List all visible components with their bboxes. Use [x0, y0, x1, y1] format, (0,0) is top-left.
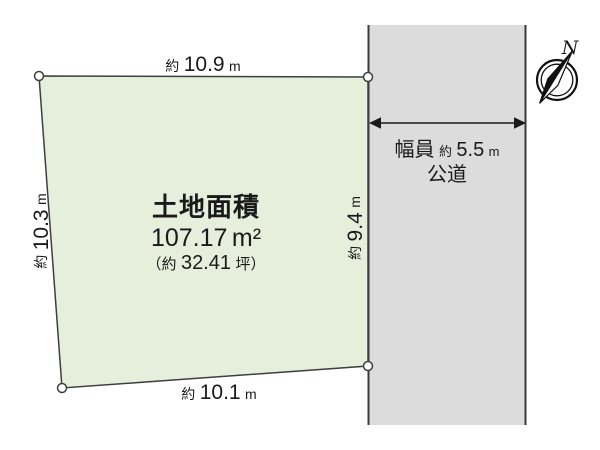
dimension-top-value: 10.9	[184, 53, 225, 76]
dimension-right-prefix: 約	[347, 246, 363, 260]
dimension-left-unit: m	[33, 193, 49, 205]
road-band	[368, 25, 526, 425]
corner-marker-top-right	[364, 73, 373, 82]
corner-marker-bottom-left	[58, 384, 67, 393]
parcel-area: 107.17 m²	[151, 224, 261, 252]
land-plot-diagram: 約 10.9 m 約 10.1 m 約 10.3 m 約 9.4 m 土地面積 …	[0, 0, 600, 450]
dimension-bottom-prefix: 約	[181, 386, 195, 402]
corner-marker-top-left	[35, 72, 44, 81]
road-name-label: 公道	[427, 163, 467, 186]
corner-marker-bottom-right	[364, 362, 373, 371]
dimension-bottom-unit: m	[245, 386, 257, 402]
parcel-tsubo-close: 坪）	[235, 256, 265, 273]
dimension-right-unit: m	[347, 196, 363, 208]
dimension-right-value: 9.4	[344, 212, 367, 242]
parcel-tsubo-value: 32.41	[181, 252, 231, 274]
road-width-prefix: 約	[439, 144, 452, 159]
parcel-area-tsubo: （約 32.41 坪）	[147, 252, 266, 274]
parcel-tsubo-open: （約	[147, 256, 177, 273]
dimension-top-prefix: 約	[165, 58, 179, 74]
dimension-top-unit: m	[229, 58, 241, 74]
parcel-area-unit: m²	[232, 224, 261, 252]
site-plan-svg: 約 10.9 m 約 10.1 m 約 10.3 m 約 9.4 m 土地面積 …	[0, 0, 600, 450]
road-width-value: 5.5	[456, 139, 484, 161]
road-width-unit: m	[489, 144, 500, 159]
parcel-area-value: 107.17	[151, 224, 227, 252]
dimension-left-value: 10.3	[30, 209, 53, 250]
dimension-bottom-value: 10.1	[200, 381, 241, 404]
compass-north-letter: N	[561, 37, 580, 59]
dimension-top-label: 約 10.9 m	[165, 53, 240, 76]
north-compass: N	[534, 37, 579, 106]
parcel-title: 土地面積	[152, 192, 260, 222]
dimension-left-prefix: 約	[33, 255, 49, 269]
dimension-bottom-label: 約 10.1 m	[181, 381, 256, 404]
road-width-kanji: 幅員	[394, 138, 434, 161]
